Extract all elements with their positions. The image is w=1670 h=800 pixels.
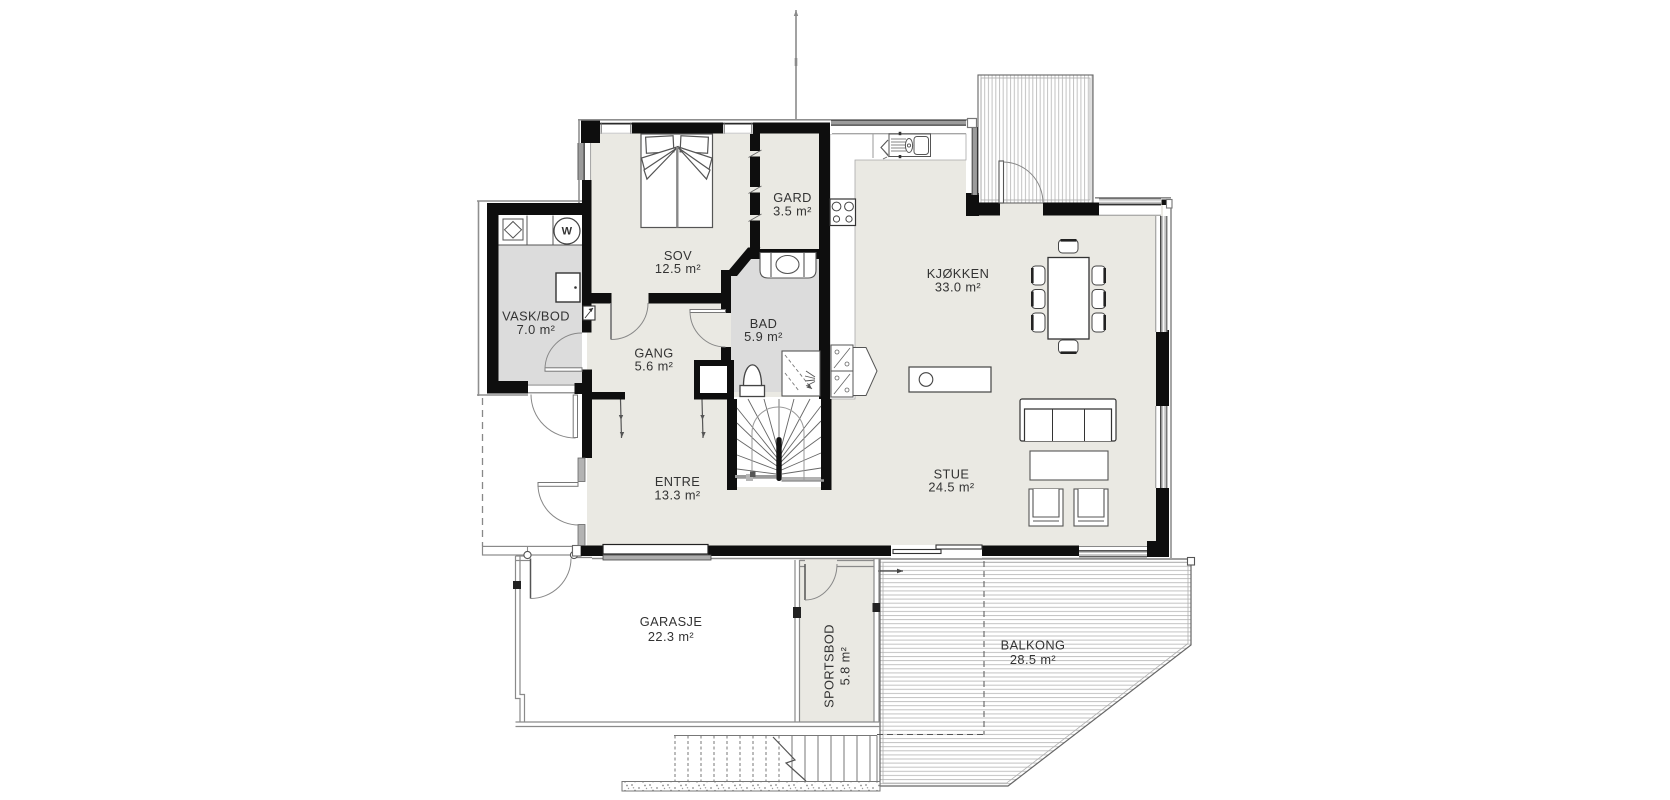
svg-text:GARASJE: GARASJE bbox=[640, 614, 703, 629]
svg-text:24.5 m²: 24.5 m² bbox=[928, 480, 975, 495]
svg-text:28.5 m²: 28.5 m² bbox=[1010, 652, 1057, 667]
svg-text:7.0 m²: 7.0 m² bbox=[517, 322, 556, 337]
svg-text:12.5 m²: 12.5 m² bbox=[655, 261, 702, 276]
svg-text:5.9 m²: 5.9 m² bbox=[744, 329, 783, 344]
svg-text:5.8 m²: 5.8 m² bbox=[838, 646, 853, 685]
svg-text:3.5 m²: 3.5 m² bbox=[773, 204, 812, 219]
svg-text:W: W bbox=[562, 226, 573, 238]
svg-text:13.3 m²: 13.3 m² bbox=[654, 488, 701, 503]
svg-text:5.6 m²: 5.6 m² bbox=[635, 359, 674, 374]
svg-text:SPORTSBOD: SPORTSBOD bbox=[822, 624, 837, 708]
svg-text:BALKONG: BALKONG bbox=[1001, 638, 1066, 653]
svg-text:33.0 m²: 33.0 m² bbox=[935, 280, 982, 295]
svg-text:22.3 m²: 22.3 m² bbox=[648, 629, 695, 644]
